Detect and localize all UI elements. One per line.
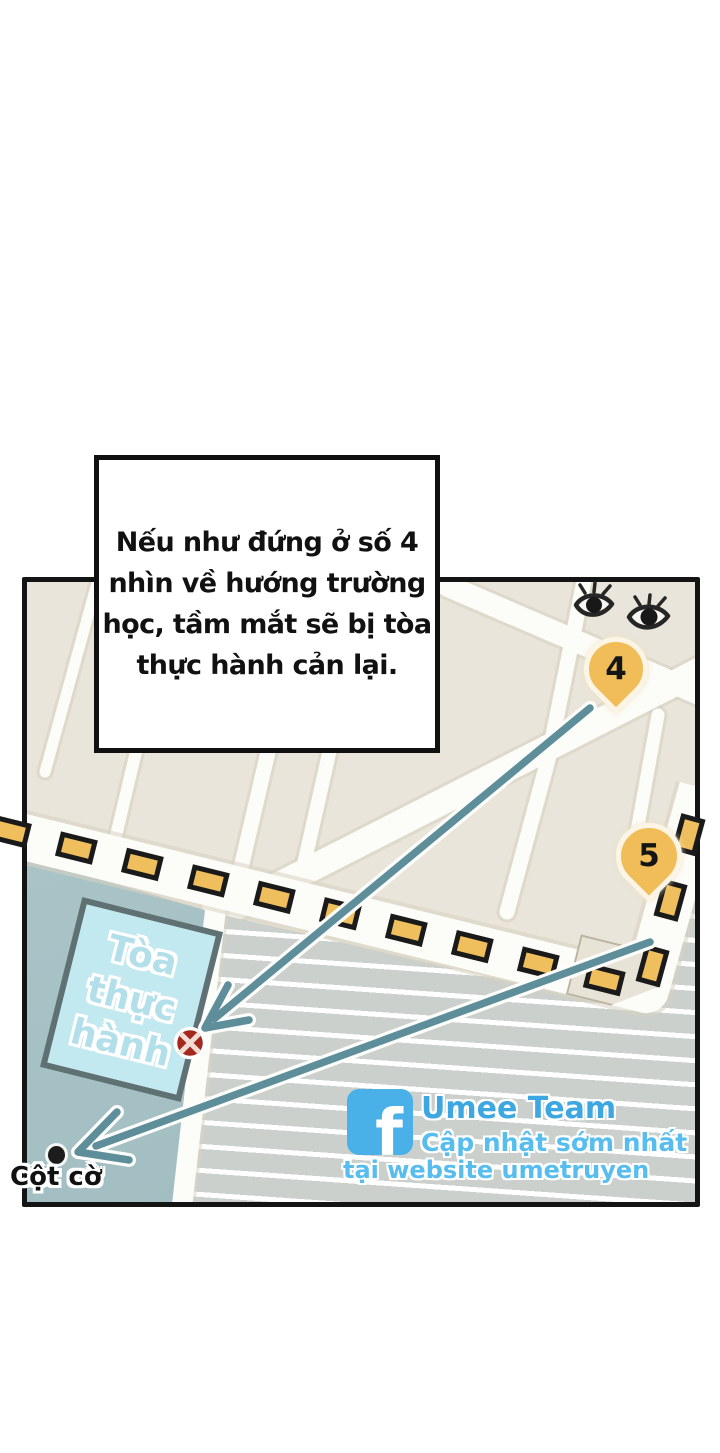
caption-box: Nếu như đứng ở số 4 nhìn về hướng trường… <box>94 455 440 753</box>
caption-line: học, tầm mắt sẽ bị tòa <box>103 604 432 645</box>
pin-5-label: 5 <box>621 828 677 884</box>
facebook-f-letter: f <box>375 1097 403 1155</box>
caption-line: Nếu như đứng ở số 4 <box>116 522 418 563</box>
caption-line: nhìn về hướng trường <box>108 563 425 604</box>
caption-line: thực hành cản lại. <box>136 645 397 686</box>
pin-4-label: 4 <box>589 642 643 696</box>
watermark-tagline-1: Cập nhật sớm nhất <box>421 1128 687 1157</box>
comic-page: { "callout": { "lines": ["Nếu như đứng ở… <box>0 0 720 1453</box>
watermark-tagline-2: tại website umetruyen <box>343 1156 649 1184</box>
watermark-brand: Umee Team <box>421 1091 616 1126</box>
flagpole-label: Cột cờ <box>10 1162 102 1192</box>
facebook-icon: f <box>347 1089 413 1155</box>
